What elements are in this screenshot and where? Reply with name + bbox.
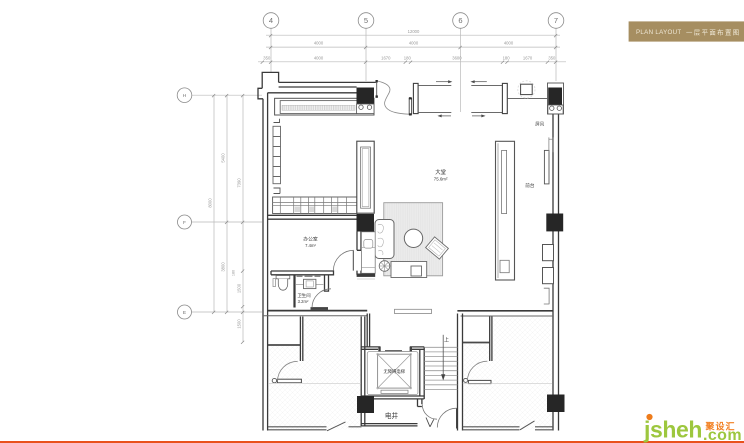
svg-text:H: H bbox=[183, 93, 187, 99]
svg-text:7390: 7390 bbox=[237, 178, 242, 188]
svg-text:.com: .com bbox=[703, 427, 742, 443]
svg-text:1670: 1670 bbox=[381, 55, 391, 60]
svg-text:无障碍电梯: 无障碍电梯 bbox=[383, 368, 405, 375]
svg-text:1670: 1670 bbox=[523, 55, 533, 60]
svg-text:1500: 1500 bbox=[237, 319, 242, 329]
svg-text:350: 350 bbox=[263, 55, 271, 60]
svg-text:8000: 8000 bbox=[208, 198, 213, 208]
svg-text:上: 上 bbox=[444, 337, 449, 344]
svg-text:6: 6 bbox=[458, 16, 462, 25]
svg-text:5400: 5400 bbox=[221, 153, 226, 163]
svg-text:电井: 电井 bbox=[385, 411, 399, 420]
svg-text:5: 5 bbox=[364, 16, 368, 25]
svg-text:75.6m²: 75.6m² bbox=[434, 177, 448, 182]
svg-text:大堂: 大堂 bbox=[435, 168, 446, 176]
svg-text:12000: 12000 bbox=[408, 29, 420, 34]
svg-text:4000: 4000 bbox=[314, 41, 324, 46]
svg-text:3800: 3800 bbox=[221, 262, 226, 272]
svg-text:7: 7 bbox=[554, 16, 558, 25]
svg-text:7.4m²: 7.4m² bbox=[305, 243, 316, 248]
svg-text:180: 180 bbox=[503, 55, 511, 60]
svg-text:一层平面布置图: 一层平面布置图 bbox=[686, 27, 741, 36]
svg-text:3600: 3600 bbox=[452, 55, 462, 60]
svg-text:前台: 前台 bbox=[525, 182, 535, 189]
svg-text:4000: 4000 bbox=[314, 55, 324, 60]
svg-text:3.2m²: 3.2m² bbox=[298, 299, 309, 304]
svg-text:350: 350 bbox=[548, 55, 556, 60]
svg-text:180: 180 bbox=[232, 270, 236, 276]
svg-text:F: F bbox=[183, 220, 186, 226]
svg-text:4000: 4000 bbox=[409, 41, 419, 46]
svg-text:jsheh: jsheh bbox=[643, 417, 702, 443]
svg-text:PLAN LAYOUT: PLAN LAYOUT bbox=[636, 29, 681, 36]
svg-text:4: 4 bbox=[269, 16, 273, 25]
svg-text:180: 180 bbox=[404, 55, 412, 60]
svg-text:4000: 4000 bbox=[504, 41, 514, 46]
svg-text:E: E bbox=[183, 310, 186, 316]
svg-text:办公室: 办公室 bbox=[303, 236, 318, 243]
svg-text:1500: 1500 bbox=[237, 283, 242, 293]
